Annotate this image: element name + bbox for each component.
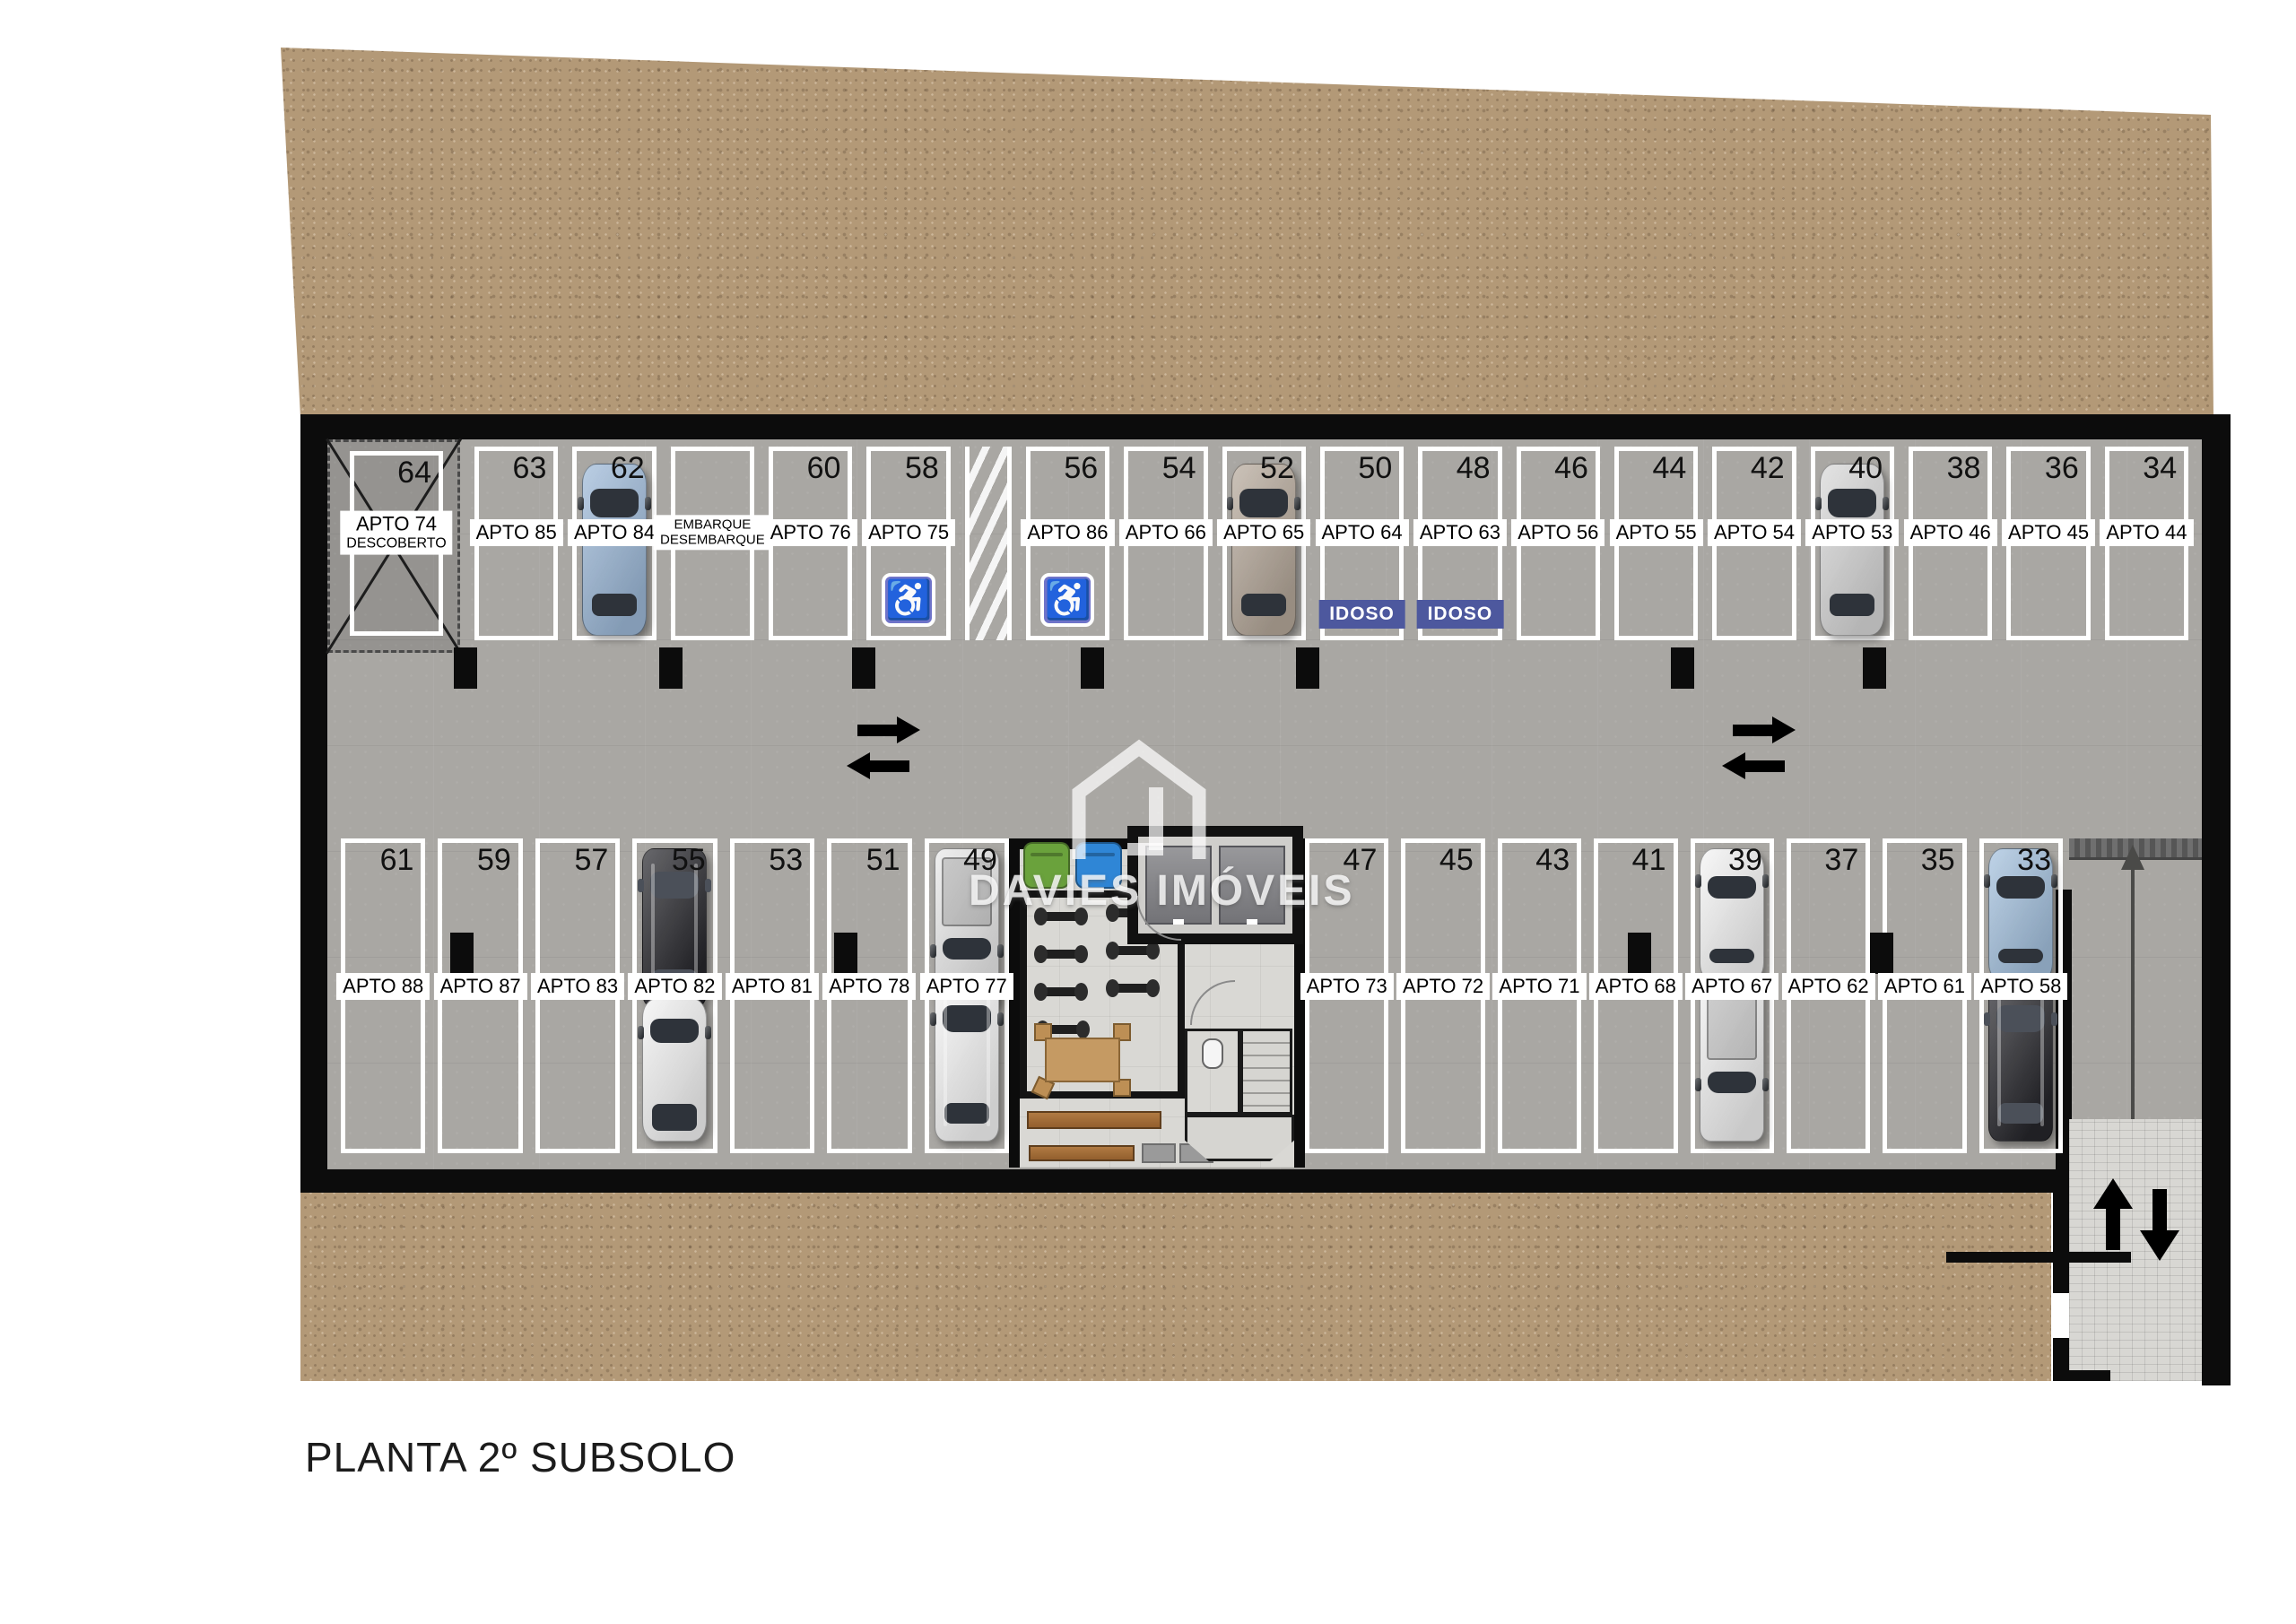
space-label: APTO 88 [336, 973, 430, 1000]
gym-equipment [1038, 950, 1084, 959]
car-white-pickup [1700, 982, 1764, 1142]
space-label: APTO 54 [1708, 519, 1801, 546]
parking-space-43: 43APTO 71 [1498, 838, 1581, 1153]
bench [1027, 1111, 1161, 1129]
car-white-hatch [642, 998, 707, 1142]
terrain-top [269, 36, 2224, 417]
door-swing [1190, 980, 1235, 1025]
space-number: 43 [1535, 845, 1570, 875]
space-number: 58 [905, 453, 939, 483]
space-label: APTO 45 [2002, 519, 2095, 546]
space-label: APTO 84 [568, 519, 661, 546]
space-number: 34 [2143, 453, 2177, 483]
space-number: 48 [1457, 453, 1491, 483]
parking-space-42: 42APTO 54 [1712, 447, 1796, 640]
parking-space-45: 45APTO 72 [1401, 838, 1484, 1153]
parking-space-53: 53APTO 81 [730, 838, 814, 1153]
space-label: APTO 75 [862, 519, 955, 546]
parking-space-61: 61APTO 88 [341, 838, 425, 1153]
parking-space-62: 62APTO 84 [572, 447, 656, 640]
parking-space-58: 58APTO 75♿ [866, 447, 950, 640]
space-number: 45 [1439, 845, 1474, 875]
exit-left-wall [2053, 1193, 2069, 1293]
staircase [1240, 1029, 1292, 1115]
parking-space-54: 54APTO 66 [1124, 447, 1207, 640]
space-number: 61 [380, 845, 414, 875]
space-label: APTO 55 [1610, 519, 1703, 546]
toilet [1202, 1038, 1223, 1069]
space-number: 39 [1728, 845, 1762, 875]
space-label: APTO 72 [1396, 973, 1490, 1000]
floor-plan-title: PLANTA 2º SUBSOLO [305, 1433, 735, 1481]
space-number: 50 [1358, 453, 1392, 483]
parking-space-34: 34APTO 44 [2105, 447, 2188, 640]
space-label: APTO 61 [1878, 973, 1971, 1000]
table [1045, 1038, 1120, 1082]
space-label: APTO 64 [1316, 519, 1409, 546]
space-label: APTO 56 [1511, 519, 1605, 546]
parking-space-39: 39APTO 67 [1691, 838, 1774, 1153]
car-tan-sedan [1231, 464, 1296, 636]
parking-space-36: 36APTO 45 [2006, 447, 2090, 640]
pillar [852, 647, 875, 689]
parking-space-56: 56APTO 86♿ [1026, 447, 1109, 640]
parking-space-33: 33APTO 58 [1979, 838, 2063, 1153]
handicap-sign: ♿ [882, 573, 935, 627]
parking-space-embarque: EMBARQUEDESEMBARQUE [671, 447, 754, 640]
handicap-sign: ♿ [1040, 573, 1094, 627]
idoso-sign: IDOSO [1318, 600, 1405, 629]
space-number: 53 [769, 845, 803, 875]
parking-space-55: 55APTO 82 [632, 838, 717, 1153]
parking-space-59: 59APTO 87 [438, 838, 522, 1153]
idoso-sign: IDOSO [1417, 600, 1504, 629]
parking-space-63: 63APTO 85 [474, 447, 558, 640]
space-label: APTO 53 [1805, 519, 1899, 546]
space-label: APTO 77 [920, 973, 1013, 1000]
space-number: 64 [397, 457, 431, 488]
parking-space-64: 64APTO 74DESCOBERTO [327, 439, 460, 653]
parking-space-52: 52APTO 65 [1222, 447, 1306, 640]
space-label: APTO 71 [1492, 973, 1586, 1000]
space-number: 33 [2017, 845, 2051, 875]
parking-space-37: 37APTO 62 [1787, 838, 1870, 1153]
car-silver-sedan [1820, 464, 1884, 636]
space-label: APTO 65 [1217, 519, 1310, 546]
space-label: EMBARQUEDESEMBARQUE [654, 515, 771, 550]
space-label: APTO 81 [726, 973, 819, 1000]
space-sublabel: DESCOBERTO [346, 536, 446, 553]
gym-equipment [1109, 984, 1156, 993]
hatched-no-parking-strip [965, 447, 1012, 640]
bathroom [1185, 1029, 1240, 1115]
parking-space-48: 48APTO 63IDOSO [1418, 447, 1501, 640]
retaining-wall [1946, 1252, 2131, 1263]
space-number: 57 [574, 845, 608, 875]
gym-equipment [1109, 946, 1156, 955]
space-label: APTO 76 [764, 519, 857, 546]
space-label: APTO 46 [1904, 519, 1997, 546]
space-number: 54 [1162, 453, 1196, 483]
floor-plan: 64APTO 74DESCOBERTO63APTO 8562APTO 84EMB… [0, 0, 2296, 1624]
parking-space-46: 46APTO 56 [1517, 447, 1600, 640]
space-number: 56 [1064, 453, 1098, 483]
parking-space-50: 50APTO 64IDOSO [1320, 447, 1404, 640]
entry-down-arrow [2140, 1189, 2179, 1261]
logo-house-icon [1054, 737, 1224, 863]
parking-space-44: 44APTO 55 [1614, 447, 1698, 640]
car-black-suv [1988, 982, 2053, 1142]
space-label: APTO 82 [628, 973, 721, 1000]
stair-landing [1185, 1115, 1294, 1161]
space-label: APTO 62 [1782, 973, 1875, 1000]
space-number: 40 [1848, 453, 1883, 483]
space-label: APTO 73 [1300, 973, 1394, 1000]
space-number: 59 [477, 845, 511, 875]
parking-space-60: 60APTO 76 [769, 447, 852, 640]
pillar [454, 647, 477, 689]
car-white-suv [935, 982, 999, 1142]
exit-bottom-wall [2053, 1370, 2110, 1381]
space-label: APTO 85 [470, 519, 563, 546]
space-label: APTO 74DESCOBERTO [340, 511, 452, 555]
pillar [1628, 933, 1651, 974]
brand-watermark: DAVIES IMÓVEIS [969, 737, 1309, 916]
ramp-up-arrow [2131, 868, 2135, 1121]
parking-space-51: 51APTO 78 [827, 838, 911, 1153]
space-label: APTO 86 [1021, 519, 1114, 546]
space-number: 62 [611, 453, 645, 483]
exit-up-arrow [2093, 1178, 2133, 1250]
logo-text: DAVIES IMÓVEIS [969, 866, 1309, 916]
space-sublabel: DESEMBARQUE [660, 533, 765, 549]
ramp-exit-pavement [2069, 1119, 2202, 1381]
space-label: APTO 44 [2100, 519, 2193, 546]
bench [1029, 1145, 1135, 1161]
space-label: APTO 78 [822, 973, 916, 1000]
space-label: APTO 83 [531, 973, 624, 1000]
pillar [1863, 647, 1886, 689]
space-number: 35 [1921, 845, 1955, 875]
car-blue-sedan [582, 464, 647, 636]
space-number: 38 [1947, 453, 1981, 483]
space-label: APTO 63 [1413, 519, 1507, 546]
space-number: 63 [513, 453, 547, 483]
parking-row-bottom-right: 47APTO 7345APTO 7243APTO 7141APTO 6839AP… [1305, 838, 2063, 1168]
space-number: 46 [1554, 453, 1588, 483]
parking-space-57: 57APTO 83 [535, 838, 620, 1153]
locker [1142, 1143, 1176, 1163]
space-number: 37 [1824, 845, 1858, 875]
exit-right-wall [2202, 1193, 2231, 1385]
space-number: 44 [1652, 453, 1686, 483]
pillar [1671, 647, 1694, 689]
parking-space-35: 35APTO 61 [1883, 838, 1966, 1153]
space-number: 51 [866, 845, 900, 875]
parking-space-41: 41APTO 68 [1594, 838, 1677, 1153]
space-label: APTO 68 [1589, 973, 1683, 1000]
traffic-arrows [1720, 716, 1801, 784]
space-number: 60 [807, 453, 841, 483]
parking-space-40: 40APTO 53 [1811, 447, 1894, 640]
pillar [834, 933, 857, 974]
parking-row-bottom-left: 61APTO 8859APTO 8757APTO 8355APTO 8253AP… [341, 838, 1009, 1168]
pillar [1081, 647, 1104, 689]
traffic-arrows [845, 716, 926, 784]
pillar [450, 933, 474, 974]
pillar [659, 647, 683, 689]
space-number: 41 [1632, 845, 1666, 875]
gym-equipment [1038, 987, 1084, 996]
pillar [1870, 933, 1893, 974]
parking-row-top: 64APTO 74DESCOBERTO63APTO 8562APTO 84EMB… [327, 439, 2188, 647]
space-number: 55 [672, 845, 706, 875]
space-label: APTO 87 [434, 973, 527, 1000]
space-label: APTO 66 [1119, 519, 1213, 546]
space-number: 52 [1260, 453, 1294, 483]
uncovered-space-box: 64APTO 74DESCOBERTO [350, 451, 443, 636]
pillar [1296, 647, 1319, 689]
parking-space-38: 38APTO 46 [1909, 447, 1992, 640]
space-label: APTO 58 [1974, 973, 2067, 1000]
terrain-bottom [300, 1193, 2051, 1381]
space-number: 42 [1751, 453, 1785, 483]
space-label: APTO 67 [1685, 973, 1779, 1000]
space-number: 36 [2045, 453, 2079, 483]
